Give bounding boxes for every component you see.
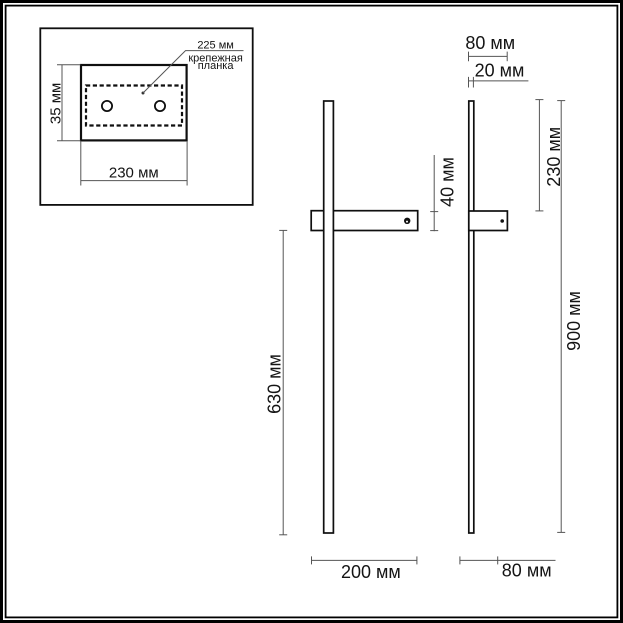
svg-text:20 мм: 20 мм [475, 61, 525, 81]
svg-text:80 мм: 80 мм [502, 560, 552, 580]
svg-text:80 мм: 80 мм [465, 33, 515, 53]
svg-text:40 мм: 40 мм [437, 157, 457, 207]
svg-text:900 мм: 900 мм [564, 291, 584, 351]
svg-text:планка: планка [198, 60, 235, 72]
svg-text:630 мм: 630 мм [264, 354, 284, 414]
svg-text:35 мм: 35 мм [47, 83, 64, 124]
svg-text:200 мм: 200 мм [341, 562, 401, 582]
svg-text:230 мм: 230 мм [109, 164, 159, 181]
svg-text:225 мм: 225 мм [197, 40, 234, 52]
